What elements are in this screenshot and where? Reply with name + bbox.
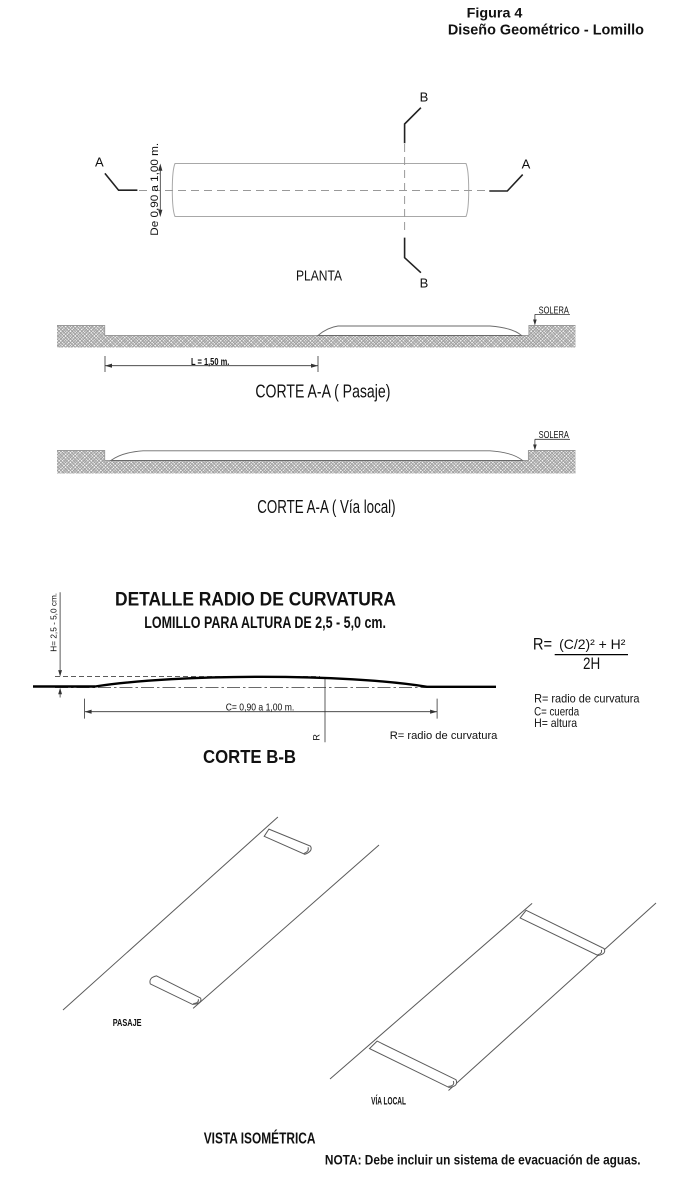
- svg-text:VÍA LOCAL: VÍA LOCAL: [371, 1094, 406, 1107]
- svg-text:B: B: [420, 90, 429, 105]
- svg-text:A: A: [522, 157, 531, 172]
- svg-text:A: A: [95, 155, 104, 170]
- svg-text:B: B: [420, 276, 429, 291]
- svg-text:CORTE A-A ( Vía local): CORTE A-A ( Vía local): [257, 496, 395, 517]
- svg-text:Figura 4: Figura 4: [467, 4, 523, 20]
- svg-text:VISTA ISOMÉTRICA: VISTA ISOMÉTRICA: [204, 1131, 316, 1148]
- svg-text:C= 0,90 a 1,00 m.: C= 0,90 a 1,00 m.: [226, 701, 295, 713]
- svg-text:Diseño Geométrico - Lomillo: Diseño Geométrico - Lomillo: [448, 22, 644, 39]
- svg-text:R= radio de curvatura: R= radio de curvatura: [534, 692, 640, 706]
- svg-text:L = 1,50 m.: L = 1,50 m.: [191, 357, 229, 368]
- svg-text:NOTA: Debe incluir un sistema: NOTA: Debe incluir un sistema de evacuac…: [325, 1152, 641, 1168]
- svg-text:H= 2,5 - 5,0 cm.: H= 2,5 - 5,0 cm.: [49, 593, 58, 652]
- svg-text:DETALLE RADIO DE CURVATURA: DETALLE RADIO DE CURVATURA: [115, 589, 396, 611]
- svg-text:(C/2)² + H²: (C/2)² + H²: [559, 636, 626, 652]
- svg-text:R: R: [311, 734, 321, 741]
- svg-text:2H: 2H: [583, 655, 600, 673]
- svg-text:R= radio de curvatura: R= radio de curvatura: [390, 730, 498, 742]
- svg-text:PASAJE: PASAJE: [113, 1017, 142, 1029]
- svg-text:De 0,90 a 1,00 m.: De 0,90 a 1,00 m.: [149, 143, 161, 236]
- svg-text:CORTE A-A ( Pasaje): CORTE A-A ( Pasaje): [255, 381, 390, 402]
- svg-text:H= altura: H= altura: [534, 716, 577, 730]
- svg-text:LOMILLO PARA ALTURA DE 2,5 - 5: LOMILLO PARA ALTURA DE 2,5 - 5,0 cm.: [144, 613, 386, 632]
- svg-text:PLANTA: PLANTA: [296, 269, 342, 285]
- svg-text:R=: R=: [533, 635, 552, 653]
- svg-text:CORTE B-B: CORTE B-B: [203, 746, 296, 767]
